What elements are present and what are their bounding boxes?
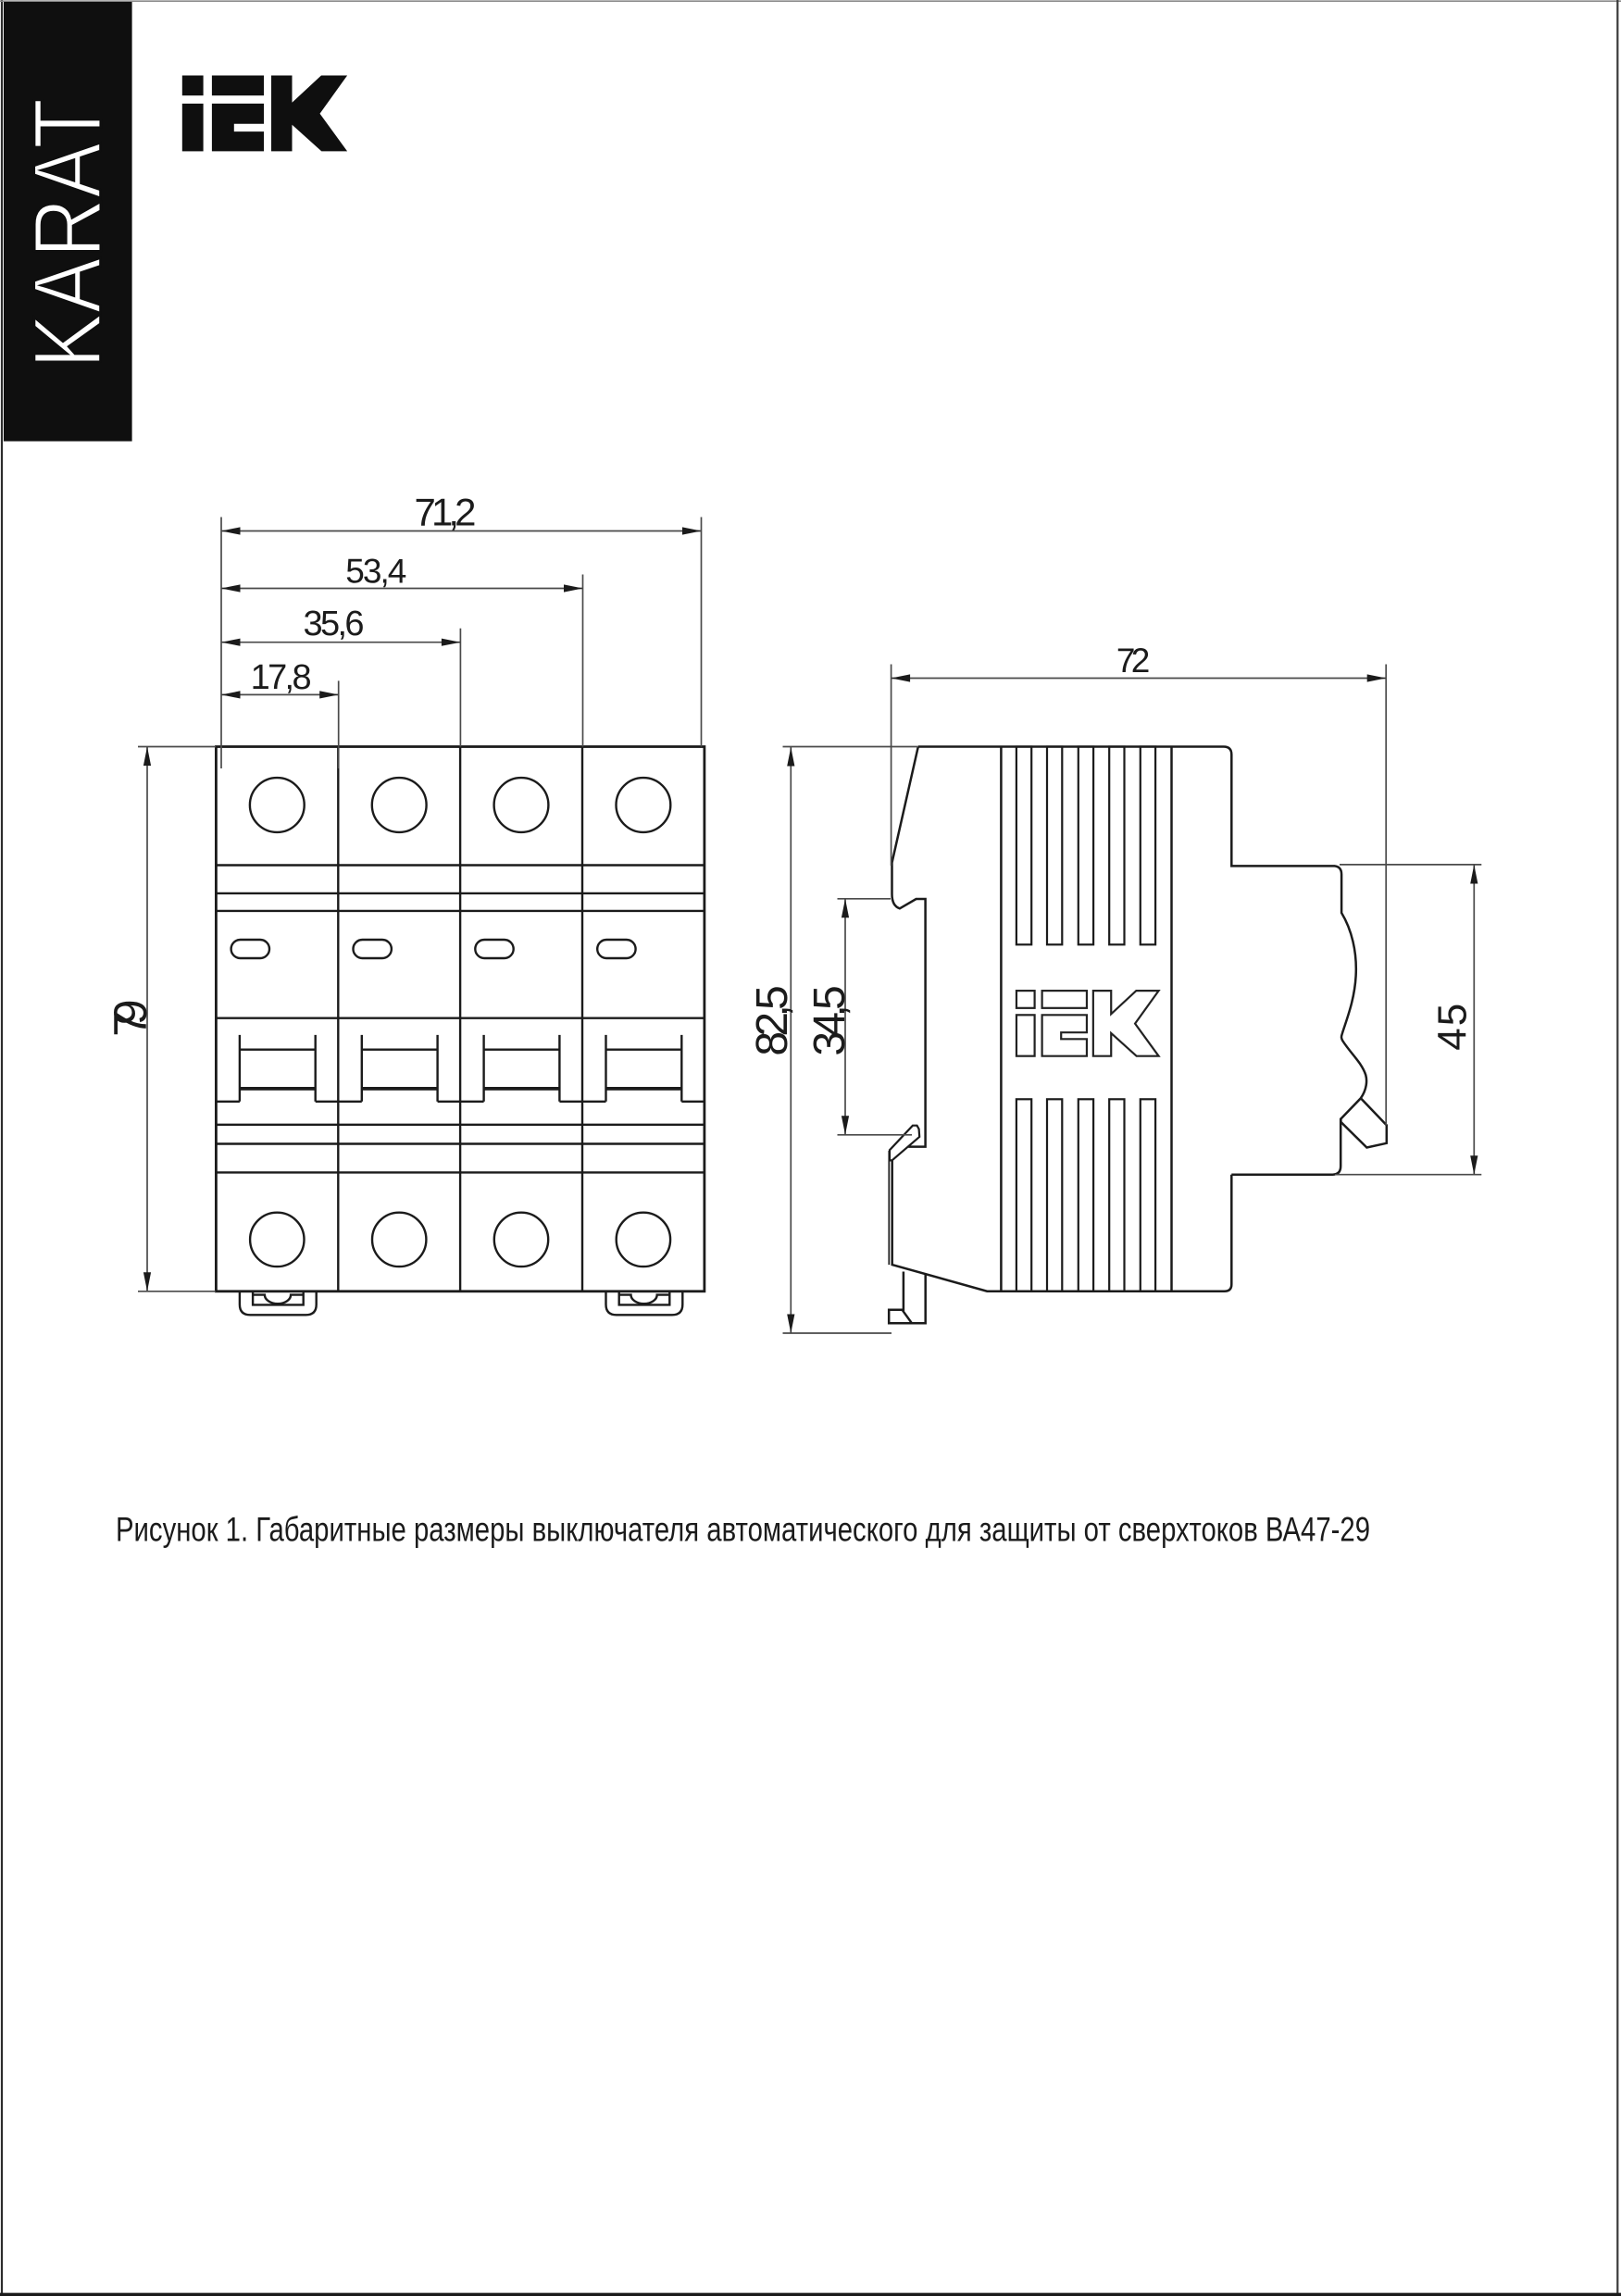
svg-text:Рисунок 1. Габаритные размеры: Рисунок 1. Габаритные размеры выключател… bbox=[116, 1511, 1370, 1549]
svg-text:34,5: 34,5 bbox=[805, 985, 854, 1056]
svg-text:53,4: 53,4 bbox=[345, 552, 406, 590]
svg-text:82,5: 82,5 bbox=[748, 985, 797, 1056]
svg-text:17,8: 17,8 bbox=[251, 658, 312, 697]
svg-text:71,2: 71,2 bbox=[415, 490, 477, 533]
svg-text:72: 72 bbox=[1116, 642, 1150, 680]
svg-text:KARAT: KARAT bbox=[15, 98, 122, 368]
svg-text:79: 79 bbox=[105, 999, 156, 1037]
svg-text:35,6: 35,6 bbox=[304, 605, 365, 643]
svg-text:45: 45 bbox=[1430, 1004, 1476, 1051]
